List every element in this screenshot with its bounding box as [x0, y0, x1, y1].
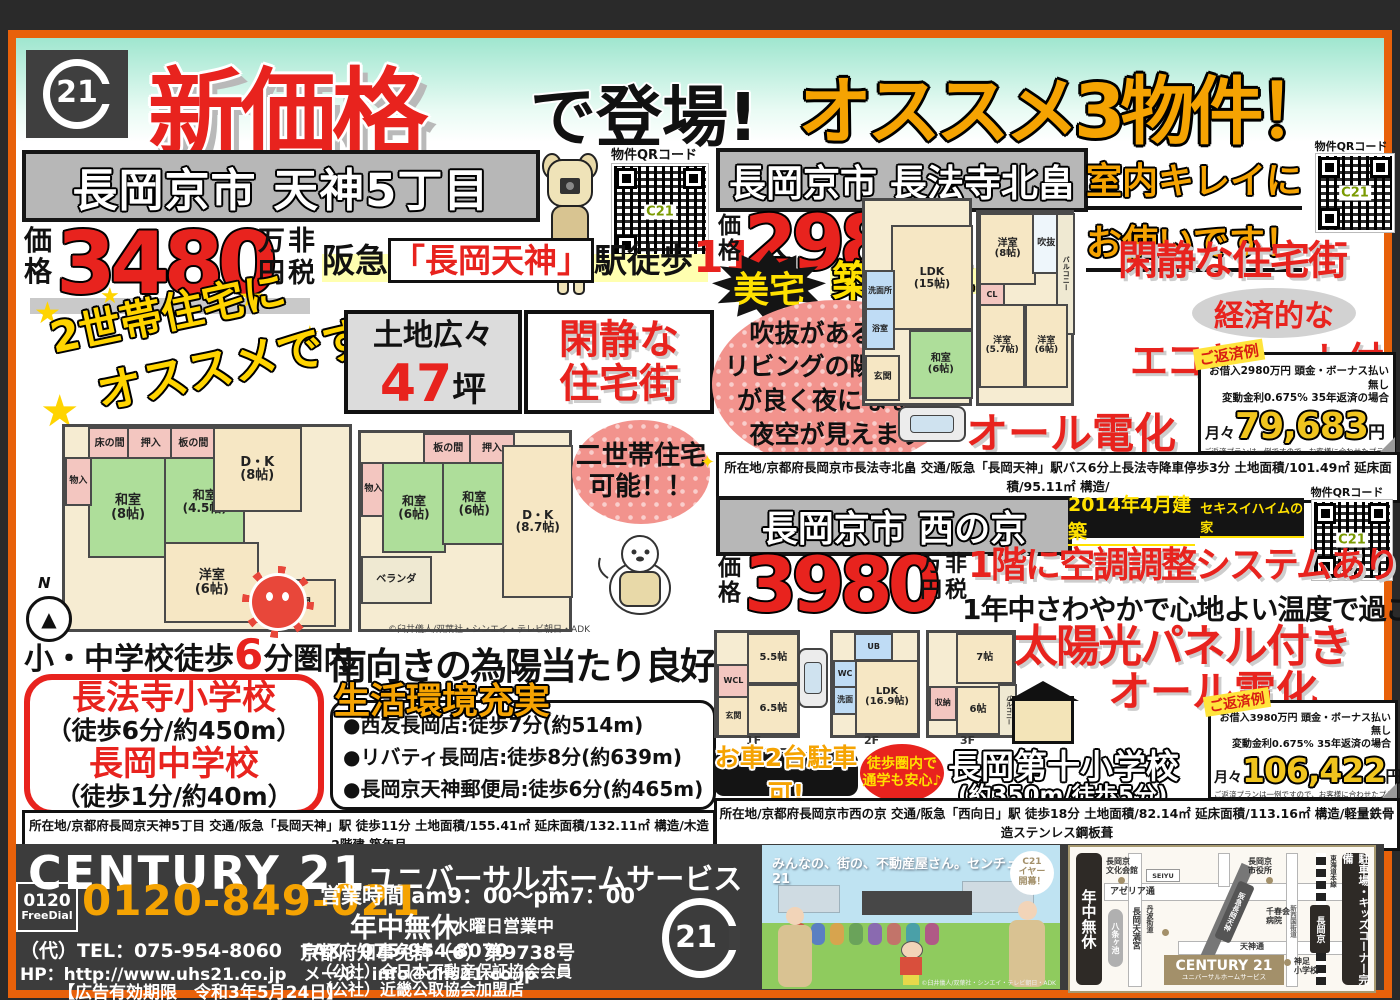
shiro-character-icon — [590, 528, 690, 624]
p1-floorplan-2f: 板の間 押入 物入 和室 (6帖) 和室 (6帖) D・K (8.7帖) ベラン… — [358, 430, 572, 632]
p3-price-number: 3980 — [744, 540, 936, 629]
house-icon — [1012, 696, 1074, 744]
room: 洋室 (5.7帖) — [979, 304, 1025, 388]
promo-person-right — [1004, 901, 1050, 987]
fold-corner — [1381, 783, 1397, 799]
map-label-azeria: アゼリア通 — [1110, 887, 1155, 897]
p3-floor-label: 2F — [864, 734, 879, 747]
map-label-school: 神足 小学校 — [1294, 957, 1318, 975]
p3-aircon: 1階に空調調整システムあり — [968, 536, 1398, 588]
room: 和室 (6帖) — [382, 462, 446, 552]
c21-logo-number: 21 — [26, 64, 128, 120]
p1-land-badge: 土地広々 47坪 — [344, 310, 522, 414]
p1-station: 「長岡天神」 — [388, 238, 594, 283]
room: 玄関 — [717, 696, 750, 737]
room: ベランダ — [361, 556, 432, 603]
room: 洗面 — [833, 686, 857, 714]
promo-badge: C21 イヤー 開幕！ — [1010, 851, 1054, 895]
p3-price-label: 価格 — [718, 556, 741, 607]
map-dot — [1162, 929, 1169, 936]
room: 洗面所 — [865, 270, 895, 312]
footer-c21-number: 21 — [650, 904, 742, 970]
qr-finder — [1368, 503, 1389, 524]
promo-person-left — [774, 907, 816, 987]
p3-walkzone-badge: 徒歩圏内で 通学も安心♪ — [860, 744, 944, 802]
room: 玄関 — [865, 355, 900, 401]
map-dot — [1118, 877, 1125, 884]
p1-price-label: 価格 — [24, 226, 52, 288]
promo-image: みんなの、街の、不動産屋さん。センチュリー21 C21 イヤー 開幕！ ©臼井儀… — [762, 845, 1060, 989]
sun-eye — [266, 592, 273, 601]
footer-wed: 水曜日営業中 — [452, 912, 554, 937]
headline-recommend: オススメ3物件！ — [798, 52, 1328, 159]
room: 洋室 (8帖) — [979, 213, 1036, 285]
room: 5.5帖 — [747, 633, 799, 684]
p1-life-item: ●長岡京天神郵便局:徒歩6分(約465m) — [343, 773, 713, 805]
sun-icon — [252, 576, 304, 628]
room: 収納 — [929, 686, 957, 721]
map-leftbar: 年中無休 — [1076, 853, 1102, 985]
map-label-pond: 八条ヶ池 — [1108, 909, 1123, 967]
p3-payment-box: お借入3980万円 頭金・ボーナス払い無し 変動金利0.675% 35年返済の場… — [1208, 700, 1398, 800]
p1-life-title: 生活環境充実 — [334, 672, 550, 724]
p3-floorplan-2f: UB WC 洗面 LDK (16.9帖) — [830, 630, 920, 738]
room: 6.5帖 — [747, 684, 799, 735]
freedial-logo: 0120 FreeDial — [16, 882, 78, 932]
qr-finder — [616, 168, 637, 189]
p2-qr-code: C21 — [1316, 154, 1394, 232]
map-dot — [1284, 959, 1291, 966]
fold-corner — [1379, 437, 1395, 453]
map-label-tenmangu: 長岡天満宮 — [1130, 907, 1140, 950]
footer-assoc2: （公社）近畿公取協会加盟店 — [316, 976, 524, 1000]
room: 板の間 — [423, 433, 473, 466]
map-jr-station: 長岡京 — [1310, 905, 1330, 953]
p2-price-label: 価格 — [718, 214, 741, 265]
p3-floorplan-1f: 玄関 WCL 5.5帖 6.5帖 — [714, 630, 800, 738]
p1-qr-center: C21 — [644, 205, 676, 220]
p2-qr-label: 物件QRコード — [1306, 140, 1396, 152]
room: 洋室 (6帖) — [1025, 304, 1068, 388]
p2-floorplan-2f: 洋室 (8帖) 吹抜 バルコニー CL 洋室 (5.7帖) 洋室 (6帖) — [976, 210, 1074, 406]
p2-qr-center: C21 — [1339, 186, 1371, 201]
room: 浴室 — [865, 308, 895, 350]
room: 押入 — [127, 427, 174, 461]
footer-c21-logo: 21 — [650, 892, 742, 984]
room: 物入 — [65, 457, 92, 505]
promo-copyright: ©臼井儀人/双葉社・シンエイ・テレビ朝日・ADK — [921, 978, 1056, 987]
qr-finder — [1319, 208, 1340, 229]
p3-pay-amount: 106,422 — [1242, 751, 1385, 790]
map-label-cityhall: 長岡京 市役所 — [1248, 857, 1272, 875]
access-map: 阪急長岡天神 長岡京 東海道本線 アゼリア通 天神通 長岡京 文化会館 SEIY… — [1068, 845, 1376, 993]
p1-dual-badge: 二世帯住宅 可能！！ — [572, 420, 710, 524]
map-dot — [1266, 877, 1273, 884]
map-road-vertical — [1218, 853, 1230, 887]
p2-quiet: 閑静な住宅街 — [1118, 228, 1346, 286]
room: 和室 (6帖) — [909, 330, 973, 399]
room: 和室 (8帖) — [88, 457, 169, 558]
room: 6帖 — [956, 686, 1000, 735]
qr-finder — [683, 168, 704, 189]
p1-school-walk: 小・中学校徒歩6分圏内 — [24, 630, 353, 679]
promo-storefront — [862, 891, 972, 915]
room: CL — [979, 283, 1005, 306]
map-shop-box: CENTURY 21 ユニバーサルホームサービス — [1164, 955, 1284, 985]
footer-expiry: 【広告有効期限 令和3年5月24日】 — [58, 978, 343, 1000]
room: 板の間 — [170, 427, 217, 461]
p1-school-box: 長法寺小学校 （徒歩6分/約450m） 長岡中学校 （徒歩1分/約40m） — [24, 674, 324, 816]
room: D・K (8.7帖) — [502, 445, 573, 598]
map-label-seiyu: SEIYU — [1146, 869, 1180, 882]
qr-finder — [1370, 157, 1391, 178]
p3-qr-label: 物件QRコード — [1302, 486, 1392, 498]
map-label-tokaido: 東海道本線 — [1328, 855, 1335, 888]
p3-built-strip: 2014年4月建築 セキスイハイムの家 — [1068, 498, 1304, 538]
map-label-bunka: 長岡京 文化会館 — [1106, 857, 1138, 875]
p2-floorplan-1f: LDK (15帖) 洗面所 浴室 和室 (6帖) 玄関 — [862, 198, 972, 406]
p1-life-item: ●リバティ長岡店:徒歩8分(約639m) — [343, 741, 713, 773]
flyer-page: 21 新価格 で登場! オススメ3物件！ 長岡京市 天神5丁目 物件QRコード … — [0, 0, 1400, 1000]
room: LDK (16.9帖) — [855, 660, 919, 735]
map-rightbar: 駐車場・キッズコーナー完備 — [1342, 853, 1368, 985]
room: WCL — [717, 664, 750, 699]
p2-payment-box: お借入2980万円 頭金・ボーナス払い無し 変動金利0.675% 35年返済の場… — [1198, 352, 1396, 454]
qr-finder — [1315, 503, 1336, 524]
c21-logo: 21 — [26, 50, 128, 138]
car-icon — [898, 406, 966, 442]
p3-floorplan-3f: 7帖 6帖 収納 バルコニー — [926, 630, 1016, 738]
room: LDK (15帖) — [891, 225, 973, 330]
p3-car-badge: お車2台駐車可! — [714, 752, 858, 796]
p1-copyright: ©臼井儀人/双葉社・シンエイ・テレビ朝日・ADK — [388, 622, 590, 635]
map-label-tenjin: 天神通 — [1240, 942, 1264, 951]
room: D・K (8帖) — [213, 427, 302, 512]
room: WC — [833, 660, 857, 688]
map-label-tanba: 丹波街道 — [1146, 905, 1154, 933]
car-icon — [798, 648, 828, 708]
p1-quiet-badge: 閑静な 住宅街 — [524, 310, 714, 414]
room: 7帖 — [956, 633, 1014, 684]
room: 床の間 — [88, 427, 132, 461]
compass-n: N — [38, 574, 51, 592]
sparkle-icon: ✦ — [700, 452, 715, 473]
room: UB — [854, 633, 893, 661]
p1-qr-label: 物件QRコード — [596, 146, 712, 160]
room: 和室 (6帖) — [442, 462, 506, 544]
p1-title: 長岡京市 天神5丁目 — [22, 150, 540, 222]
map-label-hospital: 千春会 病院 — [1266, 907, 1290, 925]
qr-finder — [1319, 157, 1340, 178]
sun-eye — [282, 592, 289, 601]
p2-pay-amount: 79,683 — [1235, 406, 1368, 447]
promo-shinchan — [898, 941, 924, 985]
